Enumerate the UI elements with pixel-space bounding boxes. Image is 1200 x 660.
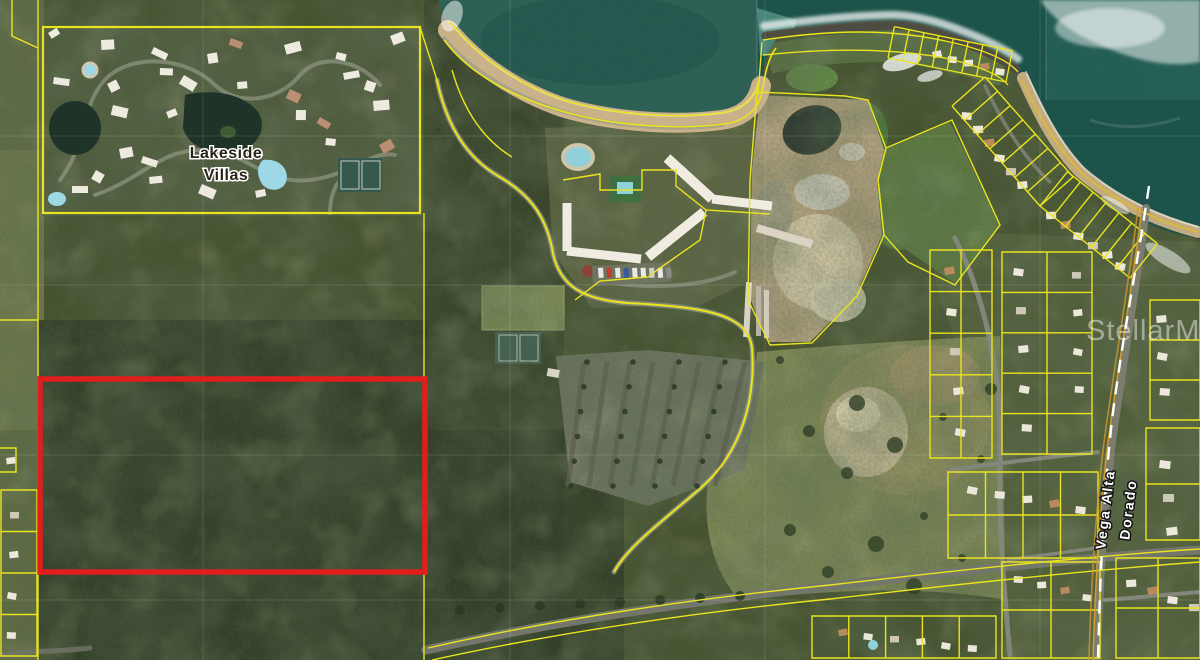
villa-building [160, 68, 173, 75]
tree [711, 409, 717, 415]
house [916, 638, 926, 646]
tree [920, 512, 928, 520]
villa-building [207, 52, 218, 63]
house [1163, 494, 1174, 502]
tree [568, 483, 574, 489]
tree [717, 384, 723, 390]
tree [985, 383, 997, 395]
tree [887, 437, 903, 453]
villa-building [237, 81, 247, 89]
villa-building [325, 138, 336, 146]
tree [610, 483, 616, 489]
satellite-map: Lakeside Villas Vega Alta Dorado Stellar… [0, 0, 1200, 660]
tree [652, 483, 658, 489]
tree [722, 359, 728, 365]
house [863, 633, 873, 641]
house [1014, 576, 1023, 583]
villa-building [101, 39, 115, 50]
house [995, 68, 1005, 76]
house [10, 512, 19, 518]
tree [575, 434, 581, 440]
tree [676, 359, 682, 365]
tree [626, 384, 632, 390]
tree [705, 434, 711, 440]
villa-building [296, 110, 306, 120]
tree [535, 601, 545, 611]
house [7, 632, 16, 639]
tree [776, 356, 784, 364]
tree [455, 605, 465, 615]
tree [630, 359, 636, 365]
car [615, 268, 621, 278]
house [6, 457, 16, 465]
tree [803, 425, 815, 437]
house [1159, 388, 1169, 396]
tennis-courts-lakeside [338, 158, 382, 192]
car [641, 268, 647, 278]
house [1159, 460, 1171, 469]
house [946, 308, 957, 317]
foam-patch [1055, 8, 1165, 48]
tree [784, 524, 796, 536]
pond [49, 101, 101, 155]
house [1072, 272, 1081, 279]
tree [615, 597, 625, 607]
tree [849, 395, 865, 411]
house [1126, 579, 1136, 587]
tree [662, 434, 668, 440]
tree [618, 434, 624, 440]
house [9, 551, 19, 559]
house [1075, 506, 1086, 514]
house [968, 645, 977, 652]
development-label-line1: Lakeside [190, 145, 262, 162]
tree [906, 578, 922, 594]
house [1166, 527, 1178, 536]
tree [700, 458, 706, 464]
car [598, 268, 604, 278]
house [1016, 307, 1026, 314]
resort-beach-pool [563, 145, 593, 169]
house [1018, 345, 1029, 353]
watermark-stellar-mls: StellarMLS [1086, 315, 1200, 347]
tree [581, 384, 587, 390]
swimming-pool [83, 63, 97, 77]
satellite-map-screenshot: Lakeside Villas Vega Alta Dorado Stellar… [0, 0, 1200, 660]
house [1073, 309, 1083, 316]
house [994, 491, 1004, 499]
car [666, 268, 672, 278]
tree [822, 566, 834, 578]
villa-building [373, 100, 390, 111]
tree [584, 359, 590, 365]
car [607, 268, 613, 278]
tree [841, 467, 853, 479]
villa-building [72, 186, 88, 193]
house [953, 387, 964, 395]
house [950, 348, 960, 355]
house [1037, 582, 1046, 589]
car [624, 268, 630, 278]
house [1013, 268, 1024, 277]
house [1075, 386, 1084, 393]
demolished-building-strip [756, 286, 761, 336]
tree [614, 458, 620, 464]
tree [868, 536, 884, 552]
tree [695, 593, 705, 603]
tree [694, 483, 700, 489]
house [1102, 251, 1113, 259]
car [632, 268, 638, 278]
tree [667, 409, 673, 415]
tree [977, 455, 985, 463]
tree [622, 409, 628, 415]
resort-pool [617, 182, 633, 194]
tree [671, 384, 677, 390]
tree [571, 458, 577, 464]
villa-building [149, 176, 163, 184]
backyard-pool [868, 640, 878, 650]
house [890, 636, 899, 642]
swimming-pool [48, 192, 66, 206]
tree [657, 458, 663, 464]
tree [495, 603, 505, 613]
house [1021, 424, 1031, 432]
tree [578, 409, 584, 415]
development-label-line2: Villas [204, 167, 249, 184]
